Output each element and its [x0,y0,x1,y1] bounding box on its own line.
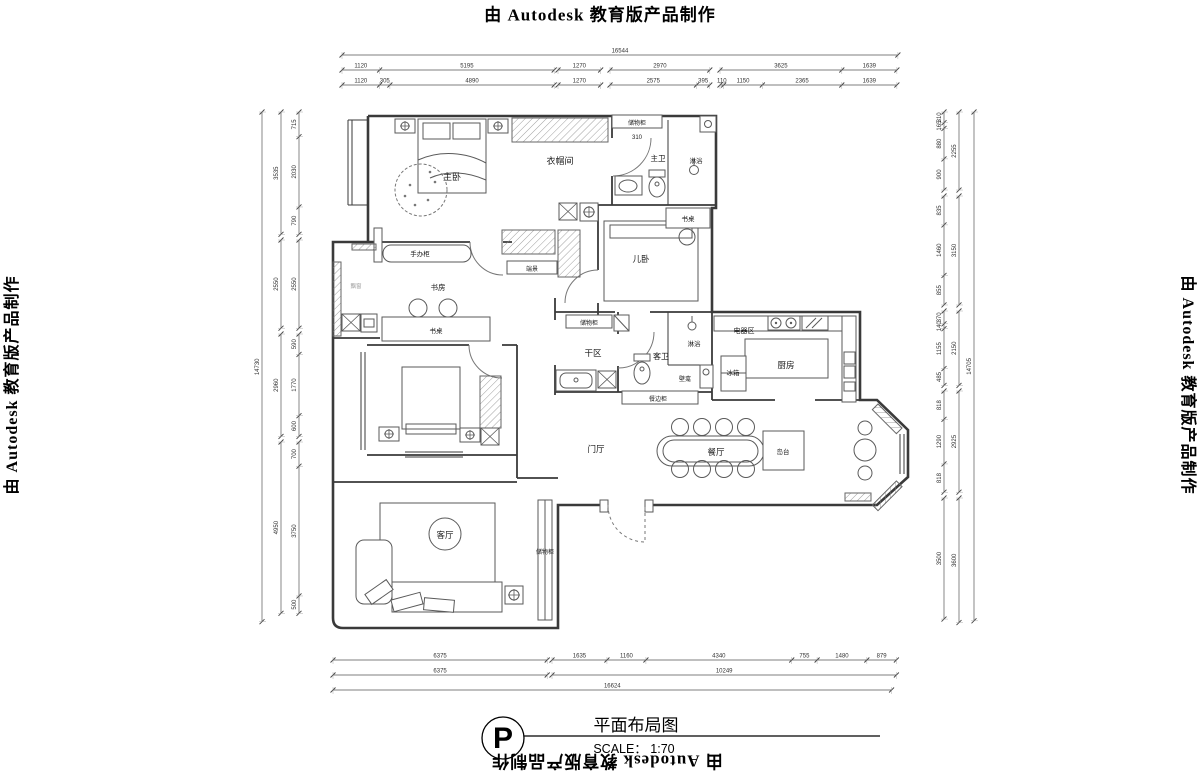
dim-text: 2365 [795,79,809,85]
room-label: 书桌 [682,214,696,223]
entry-door-arc [608,505,645,542]
second-nightstand-right [460,428,480,442]
dim-text: 1270 [573,79,587,85]
cloakroom-closet-hatch [512,118,608,142]
dim-text: 1635 [573,654,587,660]
room-label: 门厅 [587,444,605,454]
dim-text: 855 [937,285,943,296]
room-label: 壁龛 [679,375,691,383]
dim-text: 2550 [292,277,298,291]
laundry-box [342,314,360,331]
floor-drain-symbol [580,203,598,221]
dim-text: 600 [292,420,298,431]
bay-window-hatch-bottom [872,481,902,511]
ac-unit-box [559,203,577,220]
title-block: P 平面布局图 SCALE： 1:70 [482,716,880,759]
second-bedroom-door-arc [469,345,502,378]
dim-text: 1270 [573,64,587,70]
master-bath-toilet [649,170,665,197]
room-label: 电器区 [734,326,755,335]
second-ac-box [481,428,499,445]
dim-text: 1160 [620,654,634,660]
master-bath-sink [615,176,642,195]
niche-box [700,365,713,388]
study-window-hatch [333,262,341,336]
dim-text: 5195 [460,64,474,70]
guest-shower-head-icon [688,316,696,330]
dim-text: 3535 [274,166,280,180]
master-bath-door-arc [613,138,651,176]
wing-window-hatch [352,244,376,250]
appliance-box [361,314,377,332]
bay-window-stools [854,421,876,480]
dim-text: 2255 [952,144,958,158]
room-label: 储物柜 [628,119,646,127]
room-label: 书桌 [430,326,444,335]
dim-text: 14705 [967,357,973,374]
dim-text: 3625 [774,64,788,70]
living-rug [380,503,495,585]
room-label: 衣帽间 [546,155,573,166]
dim-text: 4340 [712,654,726,660]
sofa [356,540,502,612]
kitchen-sink-counter [842,316,856,402]
dim-text: 818 [937,399,943,410]
room-label: 主卫 [651,153,666,163]
corridor-wardrobe-hatch [558,230,580,277]
dim-text: 1290 [937,434,943,448]
room-label: 客卫 [653,351,669,361]
dim-text: 6375 [433,669,447,675]
dim-text: 755 [799,654,810,660]
guest-bath-door-arc [618,332,654,368]
dim-text: 2030 [292,165,298,179]
dim-text: 305 [380,79,391,85]
dim-text: 500 [292,599,298,610]
second-nightstand-left [379,427,399,441]
master-bedroom-door-arc [470,242,503,275]
room-label: 储物柜 [536,548,554,556]
dim-text: 2150 [952,341,958,355]
room-label: 飘窗 [350,282,362,290]
entry-pier-right [645,500,653,512]
dim-text: 16544 [612,49,629,55]
dim-text: 2575 [647,79,661,85]
dim-text: 3750 [292,524,298,538]
entry-pier-left [600,500,608,512]
drawing-scale: SCALE： 1:70 [593,742,674,756]
dim-text: 3500 [937,551,943,565]
room-label: 干区 [584,348,602,358]
dim-text: 590 [292,339,298,350]
corridor-cabinet-hatch [502,230,555,254]
dim-text: 4950 [274,520,280,534]
nightstand-left [395,119,415,133]
dim-text: 1639 [863,79,877,85]
dim-text: 1460 [937,243,943,257]
washer-box [700,116,716,132]
dim-text: 140 [937,321,943,332]
dim-text: 3600 [952,553,958,567]
dim-text: 1120 [354,64,368,70]
dim-text: 16624 [604,684,621,690]
dim-text: 485 [937,371,943,382]
dim-text: 2925 [952,434,958,448]
laundry-basket [614,315,629,331]
second-bedroom-wardrobe-hatch [480,376,501,428]
kids-bed [604,221,698,301]
room-label: 厨房 [777,360,794,370]
room-label: 客厅 [436,530,454,540]
dim-text: 835 [937,205,943,216]
dim-text: 3150 [952,243,958,257]
dim-text: 700 [292,448,298,459]
dim-text: 715 [292,119,298,130]
room-label: 手办柜 [410,249,430,258]
dim-text: 900 [937,169,943,180]
washing-machine [598,371,616,388]
dim-text: 2970 [653,64,667,70]
dim-text: 1150 [737,79,751,85]
room-label: 储物柜 [580,319,598,327]
study-chair-1 [409,299,427,317]
dim-text: 818 [937,472,943,483]
study-chair-2 [439,299,457,317]
dim-text: 14730 [255,358,261,375]
dim-text: 370 [937,312,943,323]
room-label: 淋浴 [690,156,704,165]
room-label: 儿卧 [632,254,650,264]
dim-text: 10249 [716,669,733,675]
floor-plan-canvas: 主卧衣帽间储物柜310主卫淋浴书桌手办柜书房飘窗端景儿卧书桌储物柜干区客卫淋浴壁… [0,0,1200,776]
room-label: 主卧 [443,171,461,182]
room-label: 端景 [526,265,538,273]
side-table [505,586,523,604]
north-symbol-letter: P [493,722,513,755]
dim-text: 2960 [274,378,280,392]
dim-text: 790 [292,215,298,226]
room-label: 餐厅 [707,447,725,457]
dim-text: 1155 [937,342,943,356]
dim-text: 1770 [292,378,298,392]
dim-text: 880 [937,138,943,149]
room-label: 岛台 [777,447,790,456]
nightstand-right [488,119,508,133]
dim-text: 165 [937,120,943,131]
drawing-title: 平面布局图 [594,716,679,735]
second-bed [402,367,460,434]
room-label: 淋浴 [688,339,702,348]
dry-area-sink [556,370,596,391]
dim-text: 1639 [863,64,877,70]
kitchen-island-counter [745,339,828,378]
dim-text: 2550 [274,277,280,291]
dim-text: 1480 [835,654,849,660]
bay-sill-hatch [845,493,871,501]
dim-text: 4890 [465,79,479,85]
room-label: 书房 [431,282,446,292]
guest-toilet [634,354,650,384]
living-storage-cabinet [538,500,552,620]
dim-text: 395 [698,79,709,85]
room-label: 餐边柜 [649,395,667,403]
drawing-sheet: 由 Autodesk 教育版产品制作 由 Autodesk 教育版产品制作 由 … [0,0,1200,776]
room-label: 310 [632,135,643,141]
room-label: 冰箱 [727,368,741,377]
dim-text: 110 [717,79,727,85]
dim-text: 1120 [354,79,368,85]
dim-text: 879 [877,654,888,660]
dim-text: 6375 [433,654,447,660]
